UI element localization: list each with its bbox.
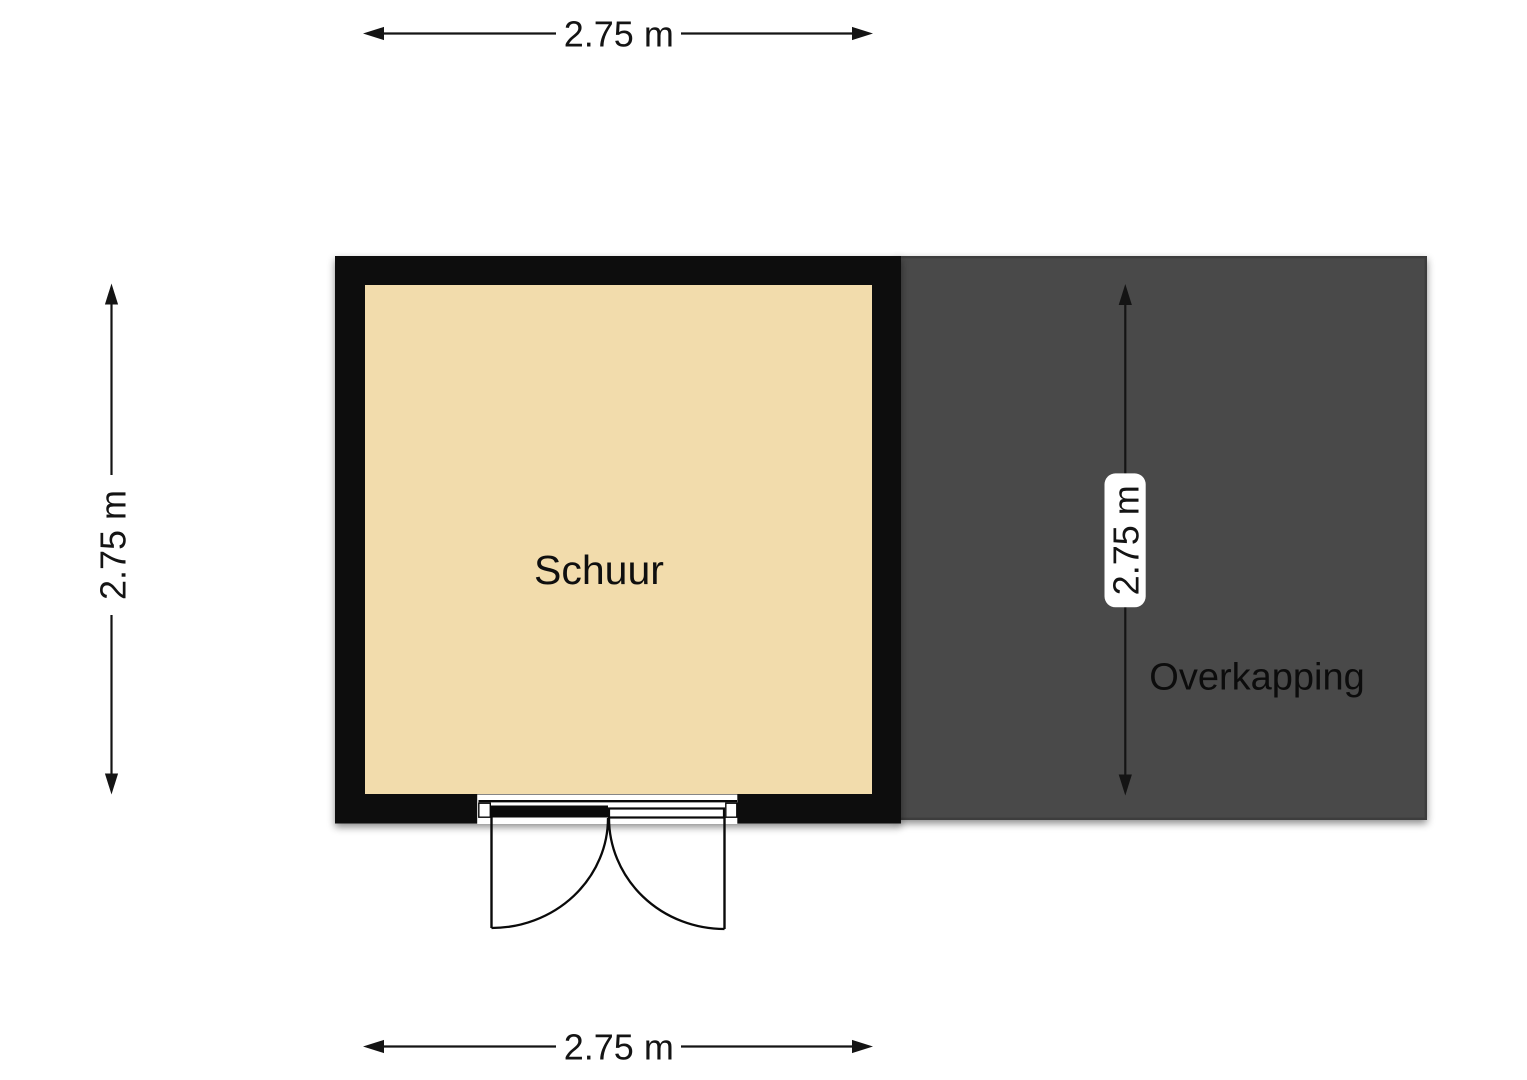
- svg-text:Overkapping: Overkapping: [1149, 657, 1364, 699]
- svg-text:2.75 m: 2.75 m: [564, 1027, 674, 1068]
- svg-text:Schuur: Schuur: [534, 547, 664, 593]
- svg-text:2.75 m: 2.75 m: [92, 490, 133, 600]
- svg-text:2.75 m: 2.75 m: [1106, 485, 1147, 595]
- svg-text:2.75 m: 2.75 m: [564, 14, 674, 55]
